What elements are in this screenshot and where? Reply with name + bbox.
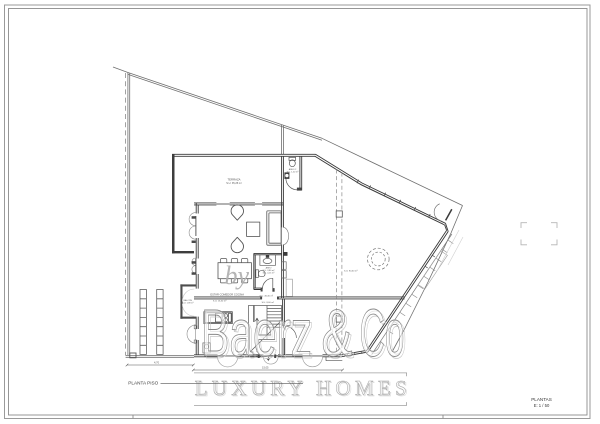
svg-text:LUXURY HOMES: LUXURY HOMES bbox=[195, 376, 412, 400]
svg-text:S.U. 4,15 m²: S.U. 4,15 m² bbox=[263, 271, 275, 274]
svg-text:Co: Co bbox=[360, 296, 405, 371]
svg-text:S.U. 1,98 m²: S.U. 1,98 m² bbox=[182, 302, 194, 305]
svg-text:S.U. 1,50 m²: S.U. 1,50 m² bbox=[287, 171, 299, 174]
svg-text:PLANTAS: PLANTAS bbox=[531, 397, 552, 402]
svg-text:4,70: 4,70 bbox=[154, 361, 160, 365]
svg-text:PLANTA PISO: PLANTA PISO bbox=[128, 380, 159, 385]
svg-text:Baerz: Baerz bbox=[201, 296, 312, 371]
svg-text:E: 1 / 50: E: 1 / 50 bbox=[534, 403, 550, 408]
svg-text:S.U. 35,25 m²: S.U. 35,25 m² bbox=[226, 182, 242, 185]
svg-text:S.U. 90,30 m²: S.U. 90,30 m² bbox=[344, 270, 358, 273]
svg-text:&: & bbox=[322, 296, 353, 371]
svg-text:by: by bbox=[225, 261, 250, 290]
svg-text:TERRAZA: TERRAZA bbox=[227, 178, 240, 182]
